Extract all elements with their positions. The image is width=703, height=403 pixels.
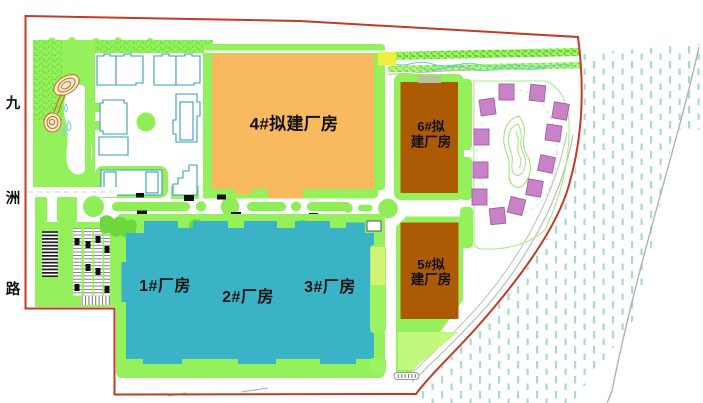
svg-text:2#厂房: 2#厂房: [222, 287, 274, 306]
svg-text:4#拟建厂房: 4#拟建厂房: [250, 114, 339, 134]
svg-text:3#厂房: 3#厂房: [304, 277, 356, 296]
svg-text:洲: 洲: [6, 190, 21, 207]
svg-text:1#厂房: 1#厂房: [139, 276, 191, 295]
svg-text:5#拟: 5#拟: [417, 257, 444, 272]
svg-text:建厂房: 建厂房: [410, 133, 452, 149]
svg-text:建厂房: 建厂房: [410, 271, 452, 287]
svg-text:6#拟: 6#拟: [417, 119, 444, 134]
svg-text:九: 九: [5, 94, 21, 112]
svg-text:路: 路: [6, 280, 21, 298]
